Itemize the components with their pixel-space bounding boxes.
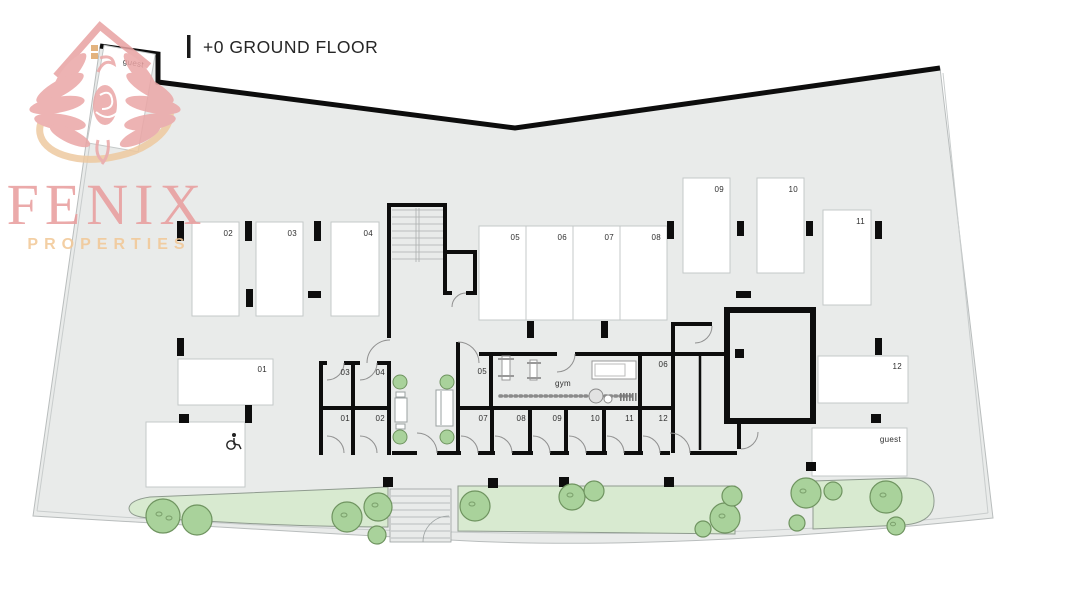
parking-space-accessible	[146, 422, 245, 487]
logo-tagline-text: PROPERTIES	[27, 236, 190, 253]
logo-chimney	[91, 53, 98, 59]
parking-label: 07	[605, 233, 615, 242]
room-label: 04	[376, 368, 386, 377]
small-ball	[604, 395, 612, 403]
title-block: +0 GROUND FLOOR	[187, 35, 378, 58]
floor-plan-drawing: guest 02 03 04 05 06 07 08 09 10 11 01 1…	[0, 0, 1066, 600]
parking-label: 10	[789, 185, 799, 194]
room-label: 02	[376, 414, 386, 423]
couch	[436, 390, 453, 426]
floor-plan-page: guest 02 03 04 05 06 07 08 09 10 11 01 1…	[0, 0, 1066, 600]
page-title: +0 GROUND FLOOR	[203, 37, 378, 57]
room-label: 07	[479, 414, 489, 423]
parking-label: 04	[364, 229, 374, 238]
utility-room-pillar	[735, 349, 744, 358]
room-label: 11	[625, 414, 634, 423]
exercise-ball	[589, 389, 603, 403]
room-label: 12	[659, 414, 669, 423]
parking-label: 12	[893, 362, 903, 371]
parking-label: 09	[715, 185, 725, 194]
parking-label: 02	[224, 229, 234, 238]
gym-label: gym	[555, 379, 571, 388]
parking-label: guest	[880, 435, 902, 444]
parking-label: 05	[511, 233, 521, 242]
room-label: 05	[478, 367, 488, 376]
logo-brand-text: FENIX	[7, 172, 208, 237]
room-label: 06	[659, 360, 669, 369]
room-label: 08	[517, 414, 527, 423]
parking-label: 08	[652, 233, 662, 242]
parking-label: 01	[258, 365, 268, 374]
room-label: 10	[591, 414, 601, 423]
room-label: 09	[553, 414, 563, 423]
parking-label: 11	[856, 217, 865, 226]
parking-label: 03	[288, 229, 298, 238]
parking-label: 06	[558, 233, 568, 242]
room-label: 03	[341, 368, 351, 377]
outdoor-stairs	[390, 489, 451, 542]
room-label: 01	[341, 414, 351, 423]
title-bar	[187, 35, 191, 58]
logo-chimney	[91, 45, 98, 51]
